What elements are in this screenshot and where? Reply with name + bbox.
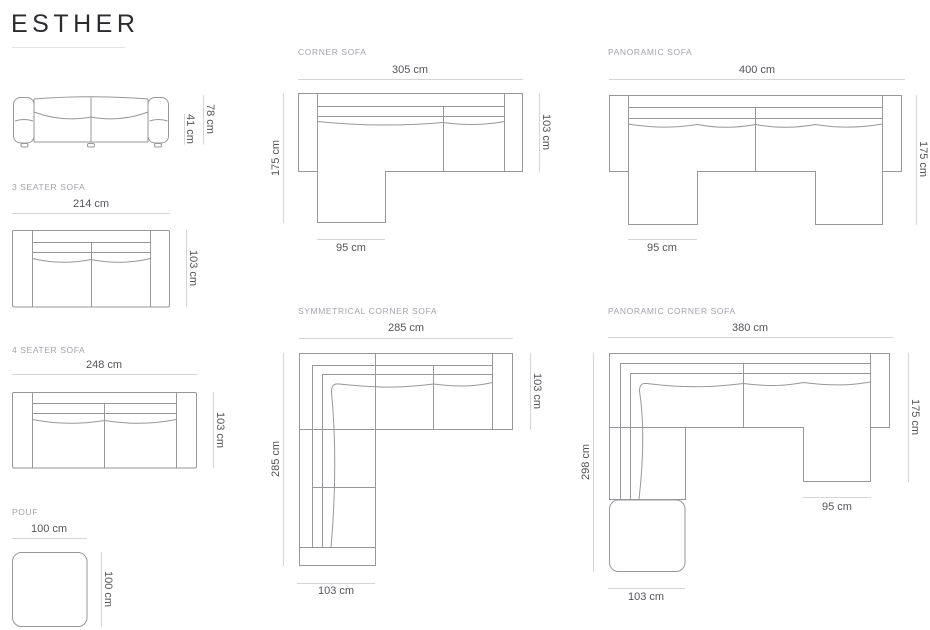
dim-panoramic-corner-total-depth: 175 cm (909, 399, 921, 435)
dim-panoramic-chaise-width: 95 cm (647, 242, 677, 254)
dim-pouf-depth: 100 cm (102, 571, 114, 607)
four-seater-drawing (13, 393, 197, 469)
front-view-sofa-drawing (14, 97, 169, 147)
section-label-symmetrical-corner: SYMMETRICAL CORNER SOFA (298, 306, 437, 316)
esther-dimensions-page: ESTHER (0, 0, 930, 630)
section-label-panoramic-corner: PANORAMIC CORNER SOFA (608, 306, 736, 316)
dim-corner-chaise-width: 95 cm (336, 242, 366, 254)
dim-panoramic-width: 400 cm (739, 64, 775, 76)
dim-four-seater-width: 248 cm (86, 359, 122, 371)
dim-panoramic-corner-chaise-width: 95 cm (822, 501, 852, 513)
dim-corner-total-depth: 175 cm (270, 140, 282, 176)
dim-pouf-width: 100 cm (31, 523, 67, 535)
corner-sofa-drawing (299, 94, 523, 223)
dim-front-total-height: 78 cm (204, 104, 216, 134)
pouf-drawing (13, 553, 88, 627)
dim-four-seater-depth: 103 cm (214, 412, 226, 448)
dim-corner-depth: 103 cm (540, 114, 552, 150)
dim-symmetrical-depth: 103 cm (531, 373, 543, 409)
section-label-four-seater: 4 SEATER SOFA (12, 345, 85, 355)
section-label-three-seater: 3 SEATER SOFA (12, 182, 85, 192)
dim-panoramic-corner-width: 380 cm (732, 322, 768, 334)
dim-three-seater-depth: 103 cm (187, 250, 199, 286)
section-label-pouf: POUF (12, 507, 38, 517)
dim-symmetrical-side-length: 285 cm (270, 441, 282, 477)
dim-front-seat-height: 41 cm (184, 114, 196, 144)
panoramic-corner-drawing (610, 354, 890, 572)
section-label-panoramic: PANORAMIC SOFA (608, 47, 692, 57)
dim-symmetrical-width: 285 cm (388, 322, 424, 334)
dim-three-seater-width: 214 cm (73, 198, 109, 210)
dim-symmetrical-side-width: 103 cm (318, 585, 354, 597)
dim-panoramic-corner-side-width: 103 cm (628, 591, 664, 603)
dim-panoramic-corner-side-length: 298 cm (580, 444, 592, 480)
dim-corner-width: 305 cm (392, 64, 428, 76)
dim-panoramic-total-depth: 175 cm (917, 141, 929, 177)
section-label-corner: CORNER SOFA (298, 47, 366, 57)
sofa-dimension-drawings (0, 0, 930, 630)
symmetrical-corner-drawing (300, 354, 513, 566)
three-seater-drawing (13, 231, 170, 308)
panoramic-sofa-drawing (610, 96, 902, 225)
